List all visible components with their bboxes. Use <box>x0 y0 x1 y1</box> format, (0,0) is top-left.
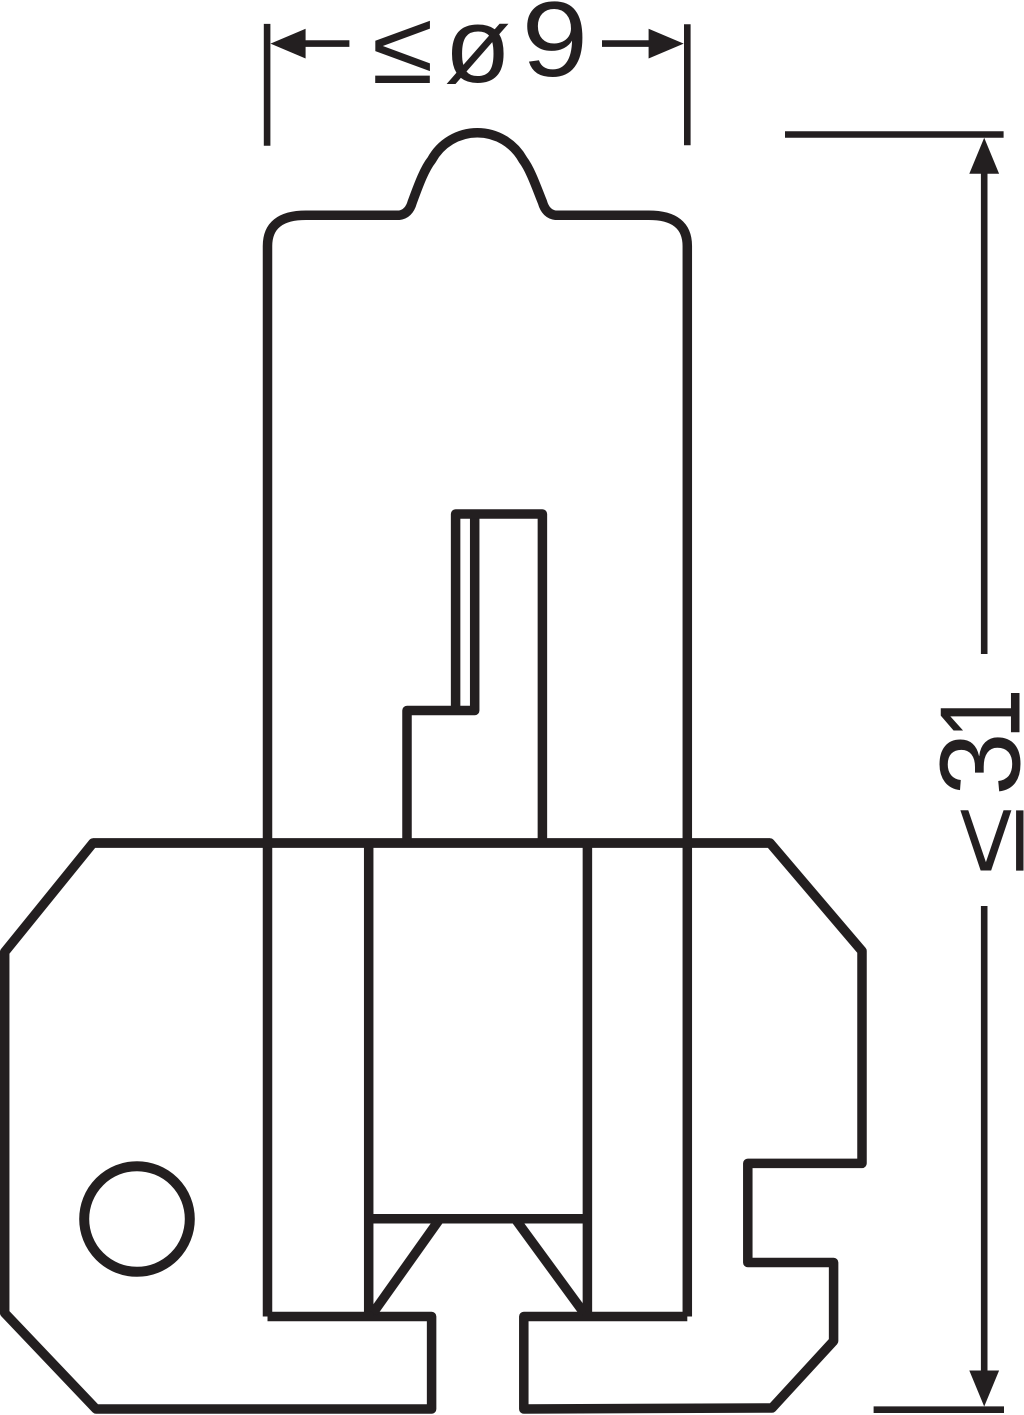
svg-text:≤: ≤ <box>929 806 1024 874</box>
svg-text:≤: ≤ <box>372 0 434 105</box>
svg-text:1: 1 <box>917 688 1024 739</box>
svg-text:ø: ø <box>444 0 511 105</box>
svg-text:9: 9 <box>522 0 588 100</box>
svg-text:3: 3 <box>918 732 1024 795</box>
